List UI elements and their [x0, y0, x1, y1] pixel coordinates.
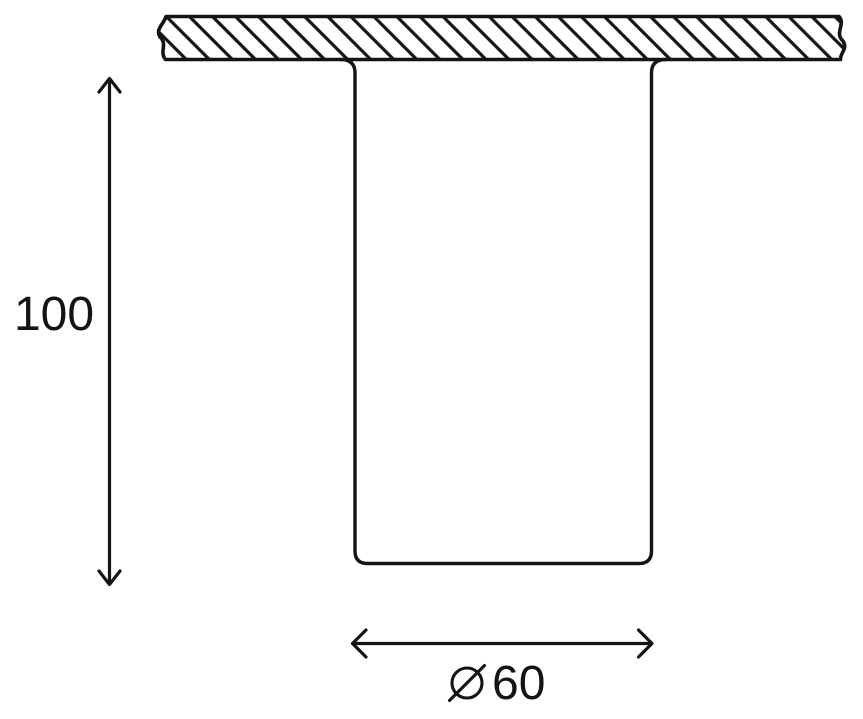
height-dimension [99, 79, 120, 585]
technical-drawing-canvas: 100 60 [0, 0, 863, 719]
dimension-drawing: 100 60 [0, 0, 863, 719]
ceiling-slab-hatch [159, 17, 845, 60]
diameter-dimension-label: 60 [492, 657, 545, 710]
diameter-dimension [353, 630, 653, 657]
diameter-symbol-icon [450, 666, 485, 701]
height-dimension-label: 100 [14, 288, 94, 341]
fixture-body [341, 60, 666, 564]
